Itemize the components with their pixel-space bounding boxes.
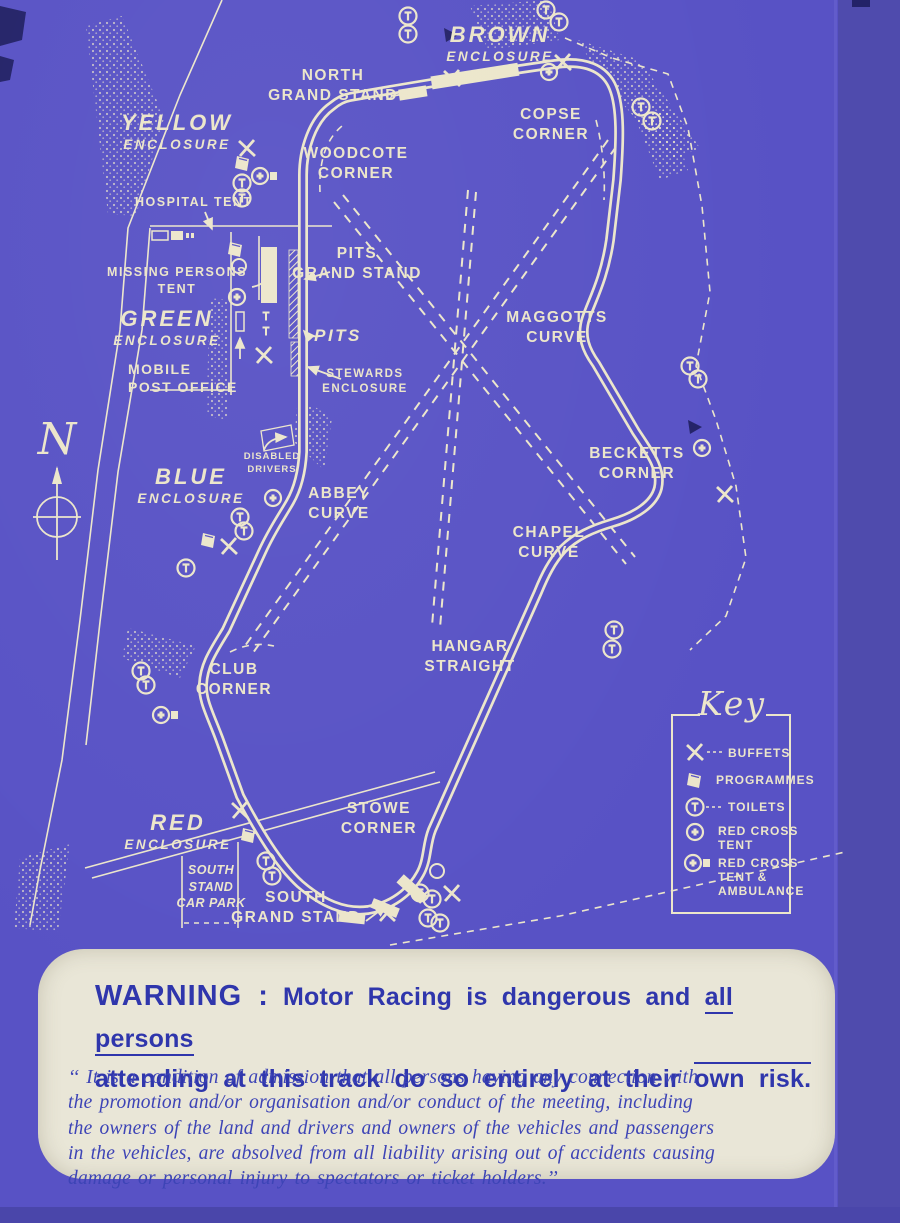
hospital-tent-label: HOSPITAL TENT xyxy=(135,194,253,211)
programmes-icon xyxy=(241,828,255,843)
toilets-icon xyxy=(400,26,417,43)
buffet-icon xyxy=(444,885,460,901)
compass-north-letter: N xyxy=(38,414,77,465)
red-cross-tent-icon xyxy=(687,824,703,840)
copse-corner-label: COPSE CORNER xyxy=(513,105,589,146)
toilets-icon xyxy=(400,8,417,25)
red-cross-tent-icon xyxy=(265,490,281,506)
toilets-icon xyxy=(178,560,195,577)
buffet-icon xyxy=(256,347,272,363)
key-item-red-cross-tent: RED CROSS TENT xyxy=(718,824,798,852)
key-item-red-cross-tent-ambulance: RED CROSS TENT & AMBULANCE xyxy=(718,856,804,898)
hangar-straight-label: HANGAR STRAIGHT xyxy=(424,637,515,678)
stewards-enclosure-label: STEWARDS ENCLOSURE xyxy=(322,367,408,397)
key-title: Key xyxy=(698,684,766,723)
mobile-post-office-booth xyxy=(236,312,244,331)
toilets-icon xyxy=(604,641,621,658)
toilets-icon xyxy=(606,622,623,639)
compass-icon xyxy=(33,466,81,560)
pits-label: PITS xyxy=(314,325,362,347)
programmes-icon xyxy=(228,242,242,257)
key-item-toilets: TOILETS xyxy=(728,800,785,816)
warning-word: WARNING : xyxy=(95,980,269,1012)
north-grand-stand-label: NORTH GRAND STAND xyxy=(268,66,398,107)
race-track xyxy=(203,63,659,911)
abbey-curve-label: ABBEY CURVE xyxy=(308,484,370,525)
buffet-icon xyxy=(239,140,255,156)
toilets-icon xyxy=(687,799,704,816)
pits-building xyxy=(261,247,277,303)
brown-enclosure-label: BROWN ENCLOSURE xyxy=(446,22,553,64)
buffet-icon xyxy=(717,486,733,502)
warning-panel: WARNING : Motor Racing is dangerous and … xyxy=(38,949,835,1179)
stowe-corner-label: STOWE CORNER xyxy=(341,799,417,840)
becketts-corner-label: BECKETTS CORNER xyxy=(589,444,685,485)
missing-persons-tent-label: MISSING PERSONS TENT xyxy=(107,264,247,297)
silverstone-circuit-map-page: N BROWN ENCLOSURE YELLOW ENCLOSURE GREEN… xyxy=(0,0,900,1223)
hospital-tent-building xyxy=(152,231,194,240)
buffet-icon xyxy=(221,538,237,554)
south-grand-stand-label: SOUTH GRAND STAND xyxy=(231,888,361,929)
mobile-post-office-label: MOBILE POST OFFICE xyxy=(128,360,238,397)
marker-icon xyxy=(430,864,444,878)
red-enclosure-label: RED ENCLOSURE xyxy=(124,810,231,852)
chapel-curve-label: CHAPEL CURVE xyxy=(513,523,586,564)
red-cross-tent-ambulance-icon xyxy=(685,855,710,871)
pits-grand-stand-label: PITS GRAND STAND xyxy=(292,244,422,285)
buffet-icon xyxy=(687,744,703,760)
key-item-buffets: BUFFETS xyxy=(728,746,790,762)
toilets-icon xyxy=(264,868,281,885)
admission-conditions-text: ‘‘ It is a condition of admission that a… xyxy=(68,1065,828,1192)
key-item-programmes: PROGRAMMES xyxy=(716,773,815,789)
disabled-drivers-label: DISABLED DRIVERS xyxy=(244,451,301,476)
flag-icon xyxy=(688,420,702,434)
maggotts-curve-label: MAGGOTTS CURVE xyxy=(506,308,608,349)
woodcote-corner-label: WOODCOTE CORNER xyxy=(304,144,409,185)
red-cross-tent-icon xyxy=(694,440,710,456)
warning-text-1: Motor Racing is dangerous and xyxy=(283,983,690,1011)
red-cross-tent-ambulance-icon xyxy=(252,168,277,184)
red-cross-tent-ambulance-icon xyxy=(153,707,178,723)
toilets-icon xyxy=(690,371,707,388)
yellow-enclosure-label: YELLOW ENCLOSURE xyxy=(121,110,233,152)
programmes-icon xyxy=(201,533,215,548)
blue-enclosure-label: BLUE ENCLOSURE xyxy=(137,464,244,506)
programmes-icon xyxy=(235,156,249,171)
green-enclosure-label: GREEN ENCLOSURE xyxy=(113,306,220,348)
programmes-icon xyxy=(687,773,701,788)
stewards-enclosure-strip xyxy=(291,342,299,376)
club-corner-label: CLUB CORNER xyxy=(196,660,272,701)
